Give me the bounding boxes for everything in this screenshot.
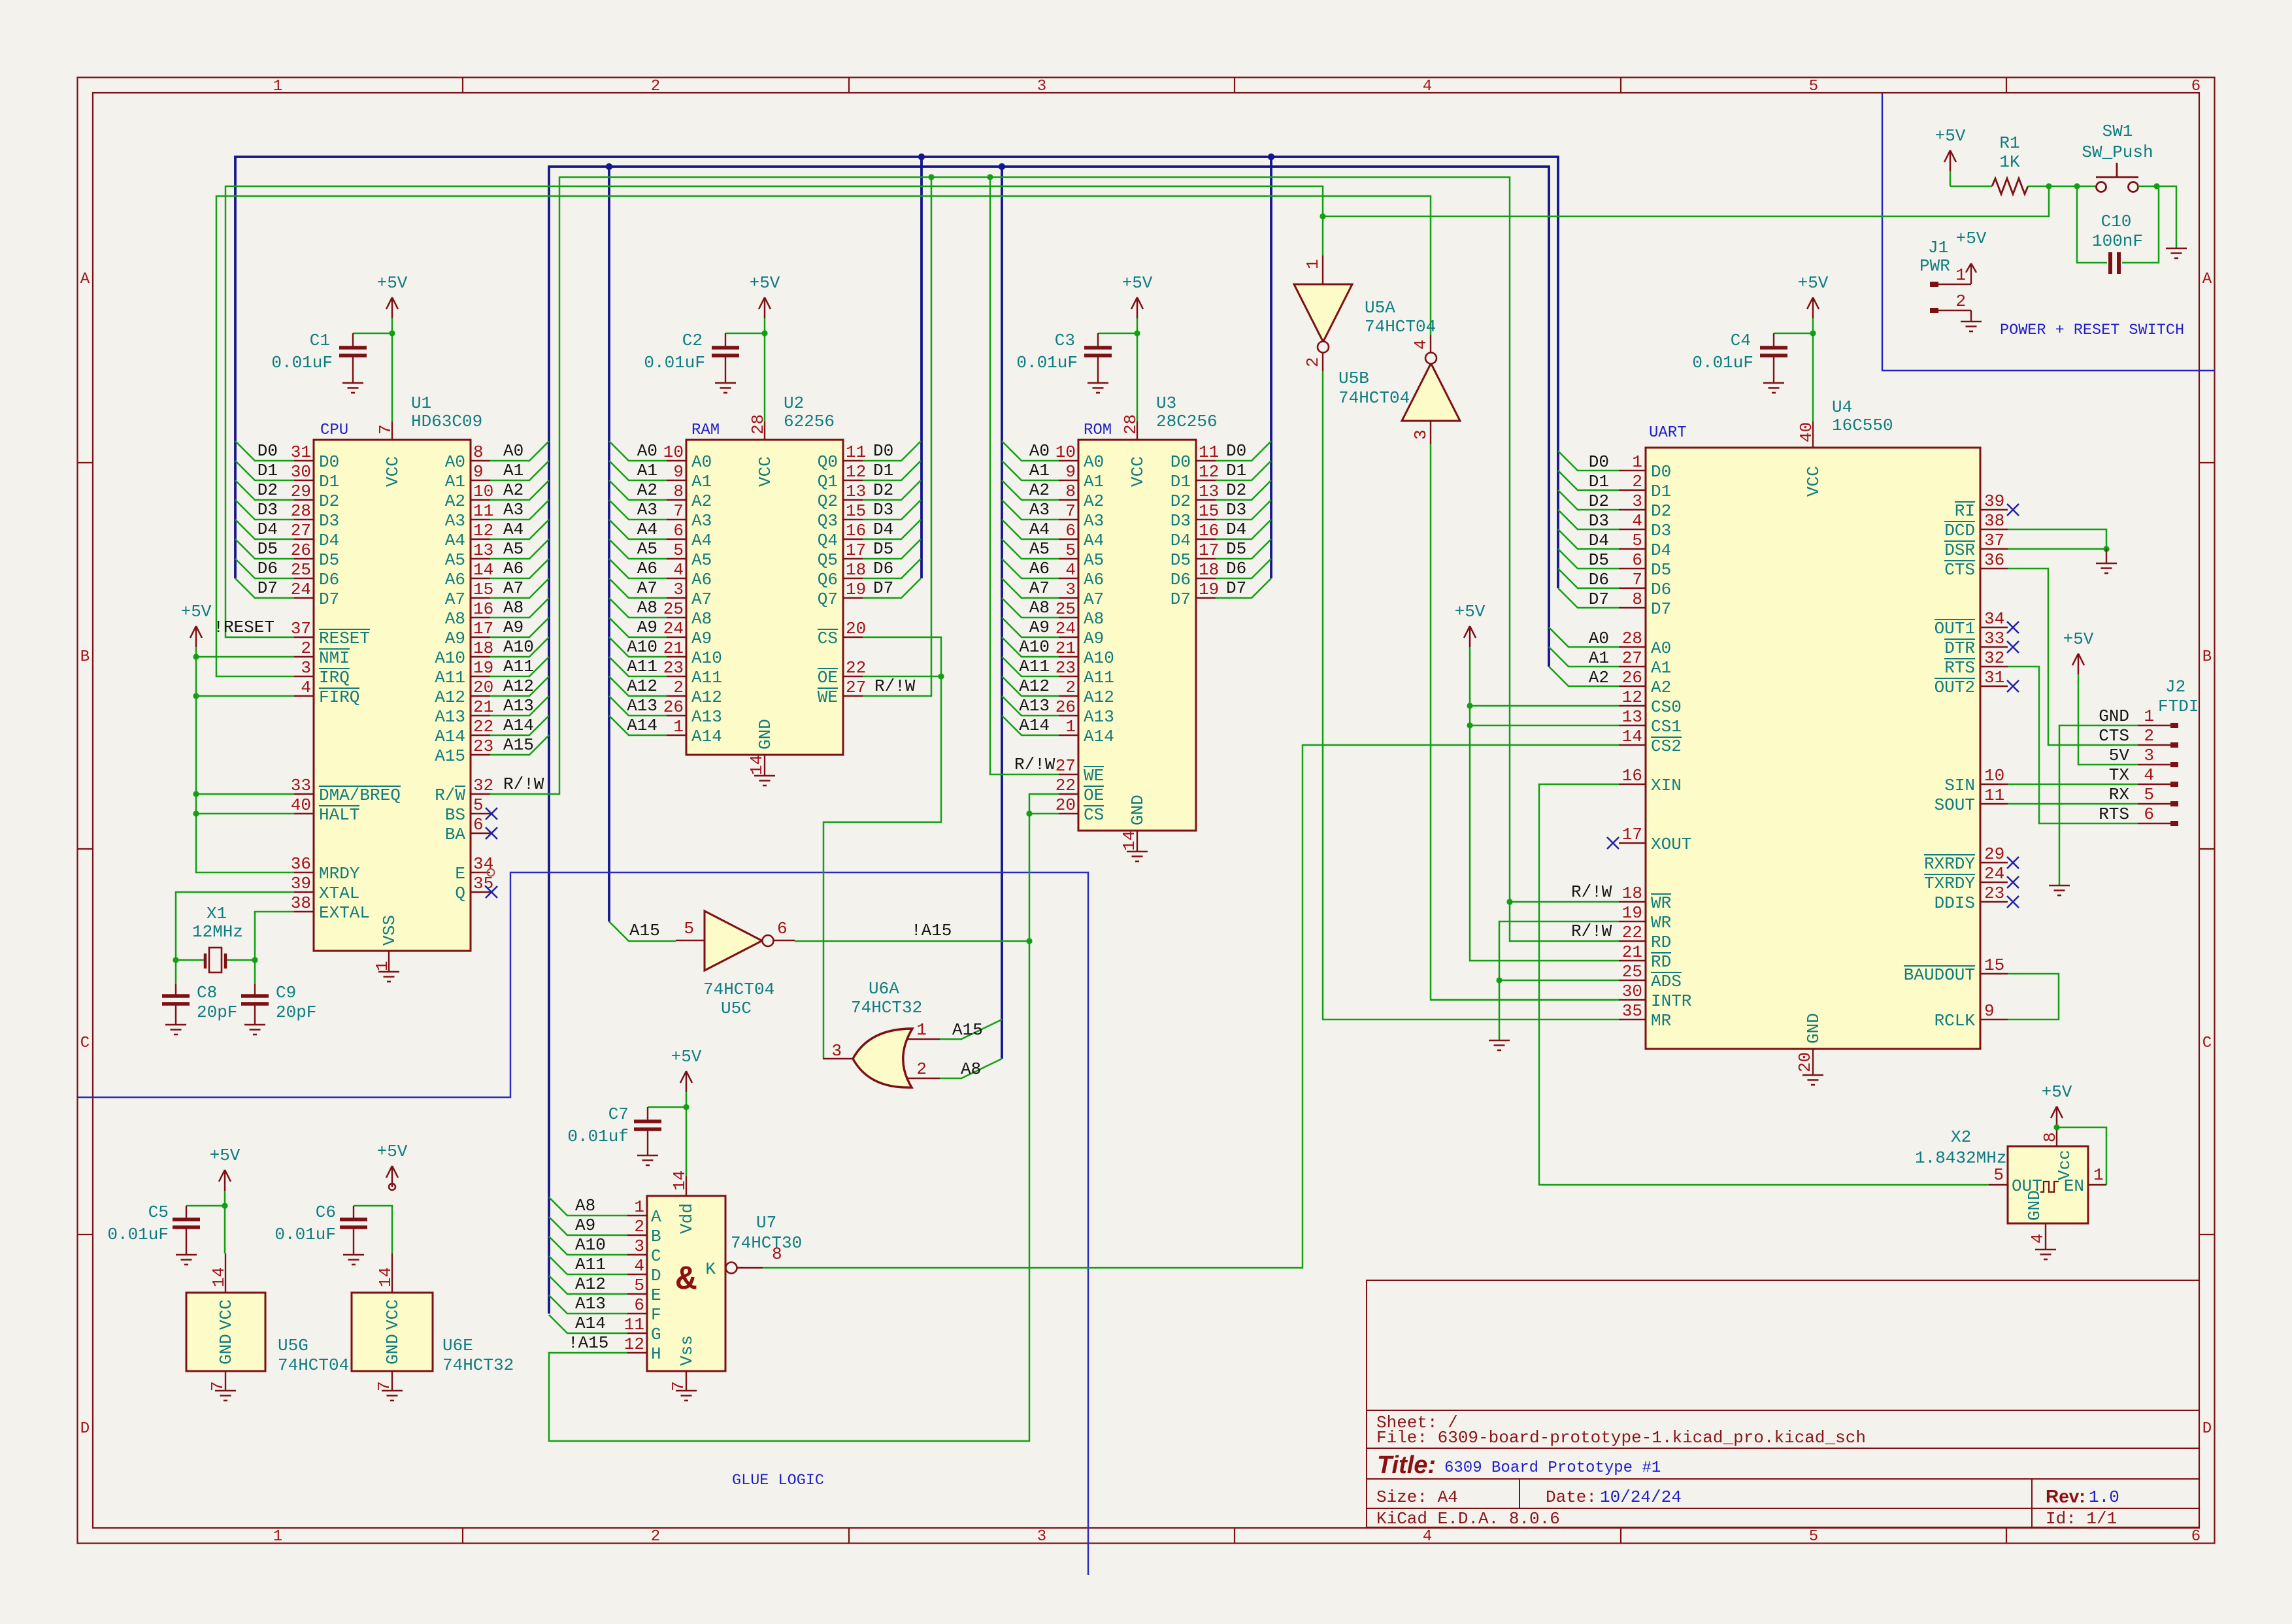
svg-text:GND: GND bbox=[2025, 1190, 2044, 1221]
svg-text:A1: A1 bbox=[1084, 472, 1104, 491]
svg-text:A13: A13 bbox=[1084, 707, 1114, 727]
svg-text:3: 3 bbox=[1632, 491, 1642, 511]
svg-text:25: 25 bbox=[663, 599, 684, 619]
svg-text:K: K bbox=[705, 1259, 716, 1279]
svg-text:6: 6 bbox=[1065, 521, 1076, 540]
svg-text:6: 6 bbox=[1632, 550, 1642, 570]
svg-text:SW1: SW1 bbox=[2102, 122, 2133, 141]
svg-text:Id: 1/1: Id: 1/1 bbox=[2046, 1509, 2117, 1529]
svg-text:RAM: RAM bbox=[691, 422, 720, 439]
svg-text:38: 38 bbox=[291, 893, 311, 913]
svg-text:12: 12 bbox=[473, 521, 493, 540]
svg-text:A3: A3 bbox=[1029, 500, 1050, 520]
svg-text:1: 1 bbox=[1303, 259, 1323, 269]
svg-text:FTDI: FTDI bbox=[2158, 697, 2199, 716]
svg-text:A15: A15 bbox=[435, 746, 465, 766]
svg-text:&: & bbox=[676, 1261, 696, 1299]
svg-text:29: 29 bbox=[291, 482, 311, 501]
svg-text:12MHz: 12MHz bbox=[192, 922, 243, 942]
svg-text:D2: D2 bbox=[873, 480, 893, 500]
svg-text:1.8432MHz: 1.8432MHz bbox=[1915, 1148, 2006, 1168]
svg-text:A4: A4 bbox=[445, 531, 465, 550]
svg-text:POWER + RESET SWITCH: POWER + RESET SWITCH bbox=[2000, 322, 2184, 339]
svg-text:16C550: 16C550 bbox=[1832, 416, 1893, 435]
svg-text:E: E bbox=[455, 864, 465, 884]
svg-text:TXRDY: TXRDY bbox=[1924, 874, 1975, 893]
svg-text:D1: D1 bbox=[257, 461, 278, 480]
svg-text:14: 14 bbox=[670, 1170, 689, 1191]
svg-text:VCC: VCC bbox=[216, 1299, 236, 1330]
svg-text:C: C bbox=[651, 1246, 661, 1266]
svg-text:A0: A0 bbox=[503, 441, 523, 461]
svg-text:A0: A0 bbox=[1084, 452, 1104, 472]
svg-text:0.01uF: 0.01uF bbox=[107, 1225, 169, 1244]
svg-text:24: 24 bbox=[1984, 864, 2004, 884]
svg-text:14: 14 bbox=[747, 755, 767, 775]
svg-text:17: 17 bbox=[846, 540, 866, 560]
svg-text:19: 19 bbox=[1622, 903, 1642, 923]
svg-text:2: 2 bbox=[301, 638, 311, 658]
svg-text:R/!W: R/!W bbox=[1014, 755, 1055, 774]
svg-text:A6: A6 bbox=[445, 570, 465, 589]
svg-text:A1: A1 bbox=[1029, 461, 1050, 480]
svg-text:A14: A14 bbox=[503, 716, 534, 735]
svg-text:A3: A3 bbox=[445, 511, 465, 531]
svg-text:D3: D3 bbox=[873, 500, 893, 520]
svg-text:8: 8 bbox=[1632, 589, 1642, 609]
svg-text:A12: A12 bbox=[575, 1274, 606, 1294]
svg-text:12: 12 bbox=[846, 462, 866, 482]
svg-text:5: 5 bbox=[2144, 785, 2154, 804]
svg-text:A5: A5 bbox=[503, 539, 523, 559]
svg-text:C6: C6 bbox=[316, 1202, 336, 1222]
svg-text:21: 21 bbox=[663, 638, 684, 658]
svg-text:!RESET: !RESET bbox=[213, 618, 274, 637]
svg-text:3: 3 bbox=[301, 658, 311, 678]
svg-text:27: 27 bbox=[846, 678, 866, 697]
svg-text:D4: D4 bbox=[1226, 520, 1246, 539]
svg-text:25: 25 bbox=[1622, 962, 1642, 982]
svg-text:4: 4 bbox=[2144, 765, 2154, 785]
svg-text:+5V: +5V bbox=[181, 602, 212, 621]
svg-text:G: G bbox=[651, 1325, 661, 1344]
svg-text:TX: TX bbox=[2109, 765, 2130, 785]
svg-text:2: 2 bbox=[1065, 678, 1076, 697]
svg-text:A5: A5 bbox=[1084, 550, 1104, 570]
svg-text:32: 32 bbox=[473, 776, 493, 795]
svg-text:CS2: CS2 bbox=[1651, 737, 1682, 756]
svg-text:Q0: Q0 bbox=[818, 452, 838, 472]
svg-text:1: 1 bbox=[673, 717, 684, 737]
svg-text:D7: D7 bbox=[257, 578, 278, 598]
svg-text:A8: A8 bbox=[637, 598, 657, 618]
svg-text:KiCad E.D.A. 8.0.6: KiCad E.D.A. 8.0.6 bbox=[1376, 1509, 1560, 1529]
svg-text:37: 37 bbox=[1984, 531, 2004, 550]
svg-text:A2: A2 bbox=[1084, 491, 1104, 511]
svg-text:D6: D6 bbox=[1589, 570, 1609, 589]
svg-text:A0: A0 bbox=[1029, 441, 1050, 461]
svg-text:0.01uf: 0.01uf bbox=[567, 1127, 629, 1146]
svg-text:6: 6 bbox=[2191, 78, 2201, 95]
svg-text:2: 2 bbox=[673, 678, 684, 697]
svg-text:11: 11 bbox=[473, 501, 493, 521]
svg-text:OE: OE bbox=[1084, 786, 1104, 805]
svg-text:A8: A8 bbox=[961, 1059, 981, 1079]
svg-text:Q7: Q7 bbox=[818, 589, 838, 609]
svg-text:A6: A6 bbox=[1084, 570, 1104, 589]
svg-text:U5A: U5A bbox=[1365, 298, 1395, 318]
svg-text:0.01uF: 0.01uF bbox=[1016, 353, 1078, 373]
svg-text:A13: A13 bbox=[627, 696, 657, 716]
svg-text:SW_Push: SW_Push bbox=[2082, 142, 2153, 162]
svg-text:OE: OE bbox=[818, 668, 838, 688]
svg-text:A10: A10 bbox=[691, 648, 722, 668]
svg-text:D6: D6 bbox=[1226, 559, 1246, 578]
svg-text:3: 3 bbox=[1065, 580, 1076, 599]
svg-text:A6: A6 bbox=[637, 559, 657, 578]
svg-text:1: 1 bbox=[1632, 452, 1642, 472]
svg-text:R/!W: R/!W bbox=[874, 676, 916, 696]
svg-text:A7: A7 bbox=[1029, 578, 1050, 598]
svg-text:23: 23 bbox=[1055, 658, 1076, 678]
svg-text:A10: A10 bbox=[575, 1235, 606, 1255]
svg-text:37: 37 bbox=[291, 619, 311, 638]
svg-text:4: 4 bbox=[301, 678, 311, 697]
svg-text:A2: A2 bbox=[691, 491, 712, 511]
svg-text:1: 1 bbox=[2144, 706, 2154, 726]
svg-text:0.01uF: 0.01uF bbox=[271, 353, 333, 373]
svg-text:31: 31 bbox=[291, 442, 311, 462]
svg-text:C1: C1 bbox=[310, 331, 330, 350]
svg-text:DDIS: DDIS bbox=[1935, 893, 1975, 913]
svg-text:11: 11 bbox=[846, 442, 866, 462]
svg-text:D7: D7 bbox=[1589, 589, 1609, 609]
svg-text:C3: C3 bbox=[1055, 331, 1075, 350]
svg-text:ADS: ADS bbox=[1651, 972, 1682, 991]
svg-text:A14: A14 bbox=[1084, 727, 1114, 746]
svg-text:Q1: Q1 bbox=[818, 472, 838, 491]
svg-text:A4: A4 bbox=[637, 520, 657, 539]
svg-text:1: 1 bbox=[2093, 1165, 2104, 1185]
svg-text:14: 14 bbox=[376, 1267, 395, 1287]
svg-text:10: 10 bbox=[473, 482, 493, 501]
svg-text:D7: D7 bbox=[873, 578, 893, 598]
svg-text:40: 40 bbox=[1797, 422, 1816, 442]
svg-text:74HCT04: 74HCT04 bbox=[1365, 317, 1436, 337]
svg-text:Vdd: Vdd bbox=[677, 1203, 697, 1234]
svg-text:Q6: Q6 bbox=[818, 570, 838, 589]
svg-text:A11: A11 bbox=[1084, 668, 1114, 688]
svg-text:U5G: U5G bbox=[278, 1336, 308, 1355]
svg-text:0.01uF: 0.01uF bbox=[644, 353, 705, 373]
svg-text:DSR: DSR bbox=[1944, 540, 1975, 560]
svg-text:33: 33 bbox=[1984, 629, 2004, 648]
svg-text:HD63C09: HD63C09 bbox=[411, 412, 482, 431]
svg-text:A15: A15 bbox=[629, 921, 660, 940]
svg-text:+5V: +5V bbox=[1122, 273, 1153, 293]
svg-text:31: 31 bbox=[1984, 668, 2004, 688]
svg-text:+5V: +5V bbox=[377, 1142, 408, 1161]
svg-text:D6: D6 bbox=[257, 559, 278, 578]
svg-text:3: 3 bbox=[2144, 746, 2154, 765]
svg-text:WR: WR bbox=[1651, 913, 1671, 933]
svg-text:4: 4 bbox=[1065, 560, 1076, 580]
svg-text:D4: D4 bbox=[1651, 540, 1671, 560]
svg-text:A9: A9 bbox=[637, 618, 657, 637]
svg-text:RTS: RTS bbox=[2099, 804, 2129, 824]
svg-text:A: A bbox=[651, 1207, 661, 1227]
svg-text:OUT2: OUT2 bbox=[1935, 678, 1975, 697]
svg-text:24: 24 bbox=[291, 580, 311, 599]
svg-text:A11: A11 bbox=[1019, 657, 1050, 676]
svg-text:D6: D6 bbox=[1171, 570, 1191, 589]
svg-text:H: H bbox=[651, 1344, 661, 1364]
svg-text:XOUT: XOUT bbox=[1651, 835, 1691, 854]
svg-text:2: 2 bbox=[2144, 726, 2154, 746]
svg-text:D7: D7 bbox=[1171, 589, 1191, 609]
svg-text:28: 28 bbox=[291, 501, 311, 521]
svg-text:Q: Q bbox=[455, 884, 465, 903]
svg-text:U1: U1 bbox=[411, 393, 431, 413]
svg-text:D3: D3 bbox=[1226, 500, 1246, 520]
svg-text:A5: A5 bbox=[637, 539, 657, 559]
svg-text:A13: A13 bbox=[503, 696, 534, 716]
svg-text:A12: A12 bbox=[1019, 676, 1050, 696]
svg-text:30: 30 bbox=[1622, 982, 1642, 1001]
svg-text:5: 5 bbox=[1809, 78, 1818, 95]
svg-text:D5: D5 bbox=[257, 539, 278, 559]
svg-text:Date:: Date: bbox=[1546, 1487, 1597, 1507]
svg-text:3: 3 bbox=[1037, 1528, 1046, 1546]
svg-text:6: 6 bbox=[473, 815, 484, 835]
svg-text:SOUT: SOUT bbox=[1935, 795, 1975, 815]
svg-text:A9: A9 bbox=[503, 618, 523, 637]
svg-text:Q4: Q4 bbox=[818, 531, 838, 550]
svg-text:EXTAL: EXTAL bbox=[319, 903, 370, 923]
svg-text:7: 7 bbox=[1632, 570, 1642, 589]
svg-text:D0: D0 bbox=[319, 452, 339, 472]
svg-text:A0: A0 bbox=[691, 452, 712, 472]
svg-text:3: 3 bbox=[1037, 78, 1046, 95]
svg-text:22: 22 bbox=[1622, 923, 1642, 942]
svg-text:2: 2 bbox=[634, 1217, 644, 1236]
svg-text:5: 5 bbox=[673, 540, 684, 560]
svg-text:A3: A3 bbox=[637, 500, 657, 520]
svg-text:GND: GND bbox=[216, 1334, 236, 1365]
svg-text:C4: C4 bbox=[1731, 331, 1751, 350]
svg-text:A9: A9 bbox=[445, 629, 465, 648]
svg-text:B: B bbox=[2202, 648, 2212, 666]
svg-text:6: 6 bbox=[2144, 804, 2154, 824]
svg-text:A3: A3 bbox=[503, 500, 523, 520]
svg-text:74HCT04: 74HCT04 bbox=[278, 1355, 349, 1375]
svg-text:20: 20 bbox=[846, 619, 866, 638]
svg-text:D3: D3 bbox=[257, 500, 278, 520]
svg-text:VCC: VCC bbox=[756, 456, 775, 487]
svg-text:1: 1 bbox=[916, 1020, 927, 1040]
svg-text:7: 7 bbox=[1065, 501, 1076, 521]
svg-text:A2: A2 bbox=[1029, 480, 1050, 500]
svg-text:74HCT32: 74HCT32 bbox=[442, 1355, 514, 1375]
svg-text:D: D bbox=[651, 1266, 661, 1285]
svg-text:WR: WR bbox=[1651, 893, 1671, 913]
svg-text:9: 9 bbox=[1984, 1001, 1995, 1021]
svg-text:C9: C9 bbox=[276, 983, 296, 1003]
svg-text:A13: A13 bbox=[435, 707, 465, 727]
svg-text:CTS: CTS bbox=[2099, 726, 2129, 746]
svg-text:A2: A2 bbox=[445, 491, 465, 511]
svg-text:20: 20 bbox=[473, 678, 493, 697]
svg-text:GND: GND bbox=[1128, 795, 1148, 825]
svg-text:A2: A2 bbox=[1589, 668, 1609, 688]
svg-text:+5V: +5V bbox=[1798, 273, 1829, 293]
svg-text:26: 26 bbox=[1055, 697, 1076, 717]
svg-text:R/!W: R/!W bbox=[503, 774, 544, 794]
svg-text:74HCT30: 74HCT30 bbox=[731, 1233, 802, 1253]
svg-text:18: 18 bbox=[1622, 884, 1642, 903]
svg-text:20: 20 bbox=[1055, 795, 1076, 815]
svg-text:C: C bbox=[80, 1035, 90, 1052]
svg-text:1: 1 bbox=[373, 961, 392, 971]
svg-text:24: 24 bbox=[1055, 619, 1076, 638]
svg-text:Rev:: Rev: bbox=[2046, 1486, 2085, 1506]
svg-text:A10: A10 bbox=[503, 637, 534, 657]
svg-text:U3: U3 bbox=[1156, 393, 1176, 413]
svg-text:J2: J2 bbox=[2165, 677, 2185, 697]
svg-text:Vcc: Vcc bbox=[2055, 1150, 2074, 1180]
svg-text:D1: D1 bbox=[1226, 461, 1246, 480]
svg-text:MRDY: MRDY bbox=[319, 864, 360, 884]
svg-text:74HCT32: 74HCT32 bbox=[851, 998, 922, 1018]
svg-text:+5V: +5V bbox=[210, 1146, 241, 1165]
svg-text:A14: A14 bbox=[575, 1314, 606, 1333]
svg-text:CPU: CPU bbox=[320, 422, 348, 439]
svg-text:VCC: VCC bbox=[1804, 466, 1823, 497]
svg-text:20pF: 20pF bbox=[197, 1003, 237, 1022]
svg-text:23: 23 bbox=[473, 737, 493, 756]
svg-text:D7: D7 bbox=[1651, 599, 1671, 619]
svg-text:1K: 1K bbox=[1999, 152, 2020, 172]
svg-text:10: 10 bbox=[1984, 766, 2004, 786]
svg-text:IRQ: IRQ bbox=[319, 668, 350, 688]
svg-text:A9: A9 bbox=[691, 629, 712, 648]
svg-text:5: 5 bbox=[1993, 1165, 2004, 1185]
svg-text:A8: A8 bbox=[445, 609, 465, 629]
svg-text:D2: D2 bbox=[1589, 491, 1609, 511]
svg-text:!A15: !A15 bbox=[568, 1333, 608, 1353]
svg-text:17: 17 bbox=[1622, 825, 1642, 844]
svg-text:16: 16 bbox=[1199, 521, 1219, 540]
svg-text:25: 25 bbox=[1055, 599, 1076, 619]
svg-text:CS1: CS1 bbox=[1651, 717, 1682, 737]
svg-text:18: 18 bbox=[846, 560, 866, 580]
svg-text:74HCT04: 74HCT04 bbox=[703, 980, 774, 999]
svg-text:A3: A3 bbox=[691, 511, 712, 531]
svg-text:13: 13 bbox=[846, 482, 866, 501]
svg-text:7: 7 bbox=[208, 1381, 227, 1391]
svg-text:2: 2 bbox=[1303, 357, 1323, 367]
svg-text:U5C: U5C bbox=[721, 999, 752, 1018]
svg-text:2: 2 bbox=[916, 1059, 927, 1079]
svg-text:D0: D0 bbox=[1171, 452, 1191, 472]
svg-text:A4: A4 bbox=[503, 520, 523, 539]
svg-text:R1: R1 bbox=[1999, 133, 2019, 153]
svg-text:14: 14 bbox=[473, 560, 493, 580]
svg-text:33: 33 bbox=[291, 776, 311, 795]
svg-text:A0: A0 bbox=[1589, 629, 1609, 648]
svg-text:A9: A9 bbox=[1029, 618, 1050, 637]
svg-text:RESET: RESET bbox=[319, 629, 370, 648]
svg-text:40: 40 bbox=[291, 795, 311, 815]
svg-text:RX: RX bbox=[2109, 785, 2130, 804]
svg-text:A4: A4 bbox=[1084, 531, 1104, 550]
svg-text:A14: A14 bbox=[1019, 716, 1050, 735]
svg-text:D4: D4 bbox=[257, 520, 278, 539]
svg-text:BA: BA bbox=[445, 825, 466, 844]
svg-text:CTS: CTS bbox=[1944, 560, 1975, 580]
svg-text:8: 8 bbox=[1065, 482, 1076, 501]
svg-text:30: 30 bbox=[291, 462, 311, 482]
svg-text:27: 27 bbox=[1055, 756, 1076, 776]
svg-text:A9: A9 bbox=[575, 1216, 595, 1235]
svg-text:A11: A11 bbox=[691, 668, 722, 688]
svg-text:27: 27 bbox=[1622, 648, 1642, 668]
svg-text:A10: A10 bbox=[627, 637, 657, 657]
svg-text:22: 22 bbox=[473, 717, 493, 737]
svg-text:39: 39 bbox=[291, 874, 311, 893]
svg-text:A6: A6 bbox=[691, 570, 712, 589]
svg-text:32: 32 bbox=[1984, 648, 2004, 668]
svg-text:4: 4 bbox=[634, 1256, 644, 1276]
svg-text:19: 19 bbox=[846, 580, 866, 599]
svg-text:DMA/BREQ: DMA/BREQ bbox=[319, 786, 401, 805]
svg-text:D6: D6 bbox=[873, 559, 893, 578]
svg-text:7: 7 bbox=[673, 501, 684, 521]
svg-text:A10: A10 bbox=[1084, 648, 1114, 668]
svg-text:25: 25 bbox=[291, 560, 311, 580]
svg-text:28: 28 bbox=[1622, 629, 1642, 648]
svg-text:23: 23 bbox=[663, 658, 684, 678]
svg-text:17: 17 bbox=[1199, 540, 1219, 560]
svg-text:28: 28 bbox=[1121, 414, 1140, 435]
svg-text:34: 34 bbox=[1984, 609, 2004, 629]
svg-text:A1: A1 bbox=[637, 461, 657, 480]
svg-text:26: 26 bbox=[663, 697, 684, 717]
svg-text:Vss: Vss bbox=[677, 1335, 697, 1366]
svg-text:A10: A10 bbox=[1019, 637, 1050, 657]
svg-text:5: 5 bbox=[1632, 531, 1642, 550]
svg-text:A12: A12 bbox=[1084, 688, 1114, 707]
svg-text:8: 8 bbox=[473, 442, 484, 462]
svg-text:A12: A12 bbox=[435, 688, 465, 707]
svg-text:20pF: 20pF bbox=[276, 1003, 316, 1022]
svg-text:15: 15 bbox=[1199, 501, 1219, 521]
svg-text:C8: C8 bbox=[197, 983, 217, 1003]
svg-text:23: 23 bbox=[1984, 884, 2004, 903]
svg-text:4: 4 bbox=[1423, 1528, 1432, 1546]
svg-text:D0: D0 bbox=[1226, 441, 1246, 461]
svg-text:A2: A2 bbox=[503, 480, 523, 500]
svg-text:4: 4 bbox=[1411, 339, 1431, 350]
svg-text:CS0: CS0 bbox=[1651, 697, 1682, 717]
svg-text:12: 12 bbox=[1622, 688, 1642, 707]
svg-text:15: 15 bbox=[846, 501, 866, 521]
svg-text:21: 21 bbox=[473, 697, 493, 717]
svg-text:C7: C7 bbox=[608, 1104, 629, 1124]
svg-text:A1: A1 bbox=[1589, 648, 1609, 668]
svg-text:D1: D1 bbox=[1589, 472, 1609, 491]
svg-text:D2: D2 bbox=[1226, 480, 1246, 500]
